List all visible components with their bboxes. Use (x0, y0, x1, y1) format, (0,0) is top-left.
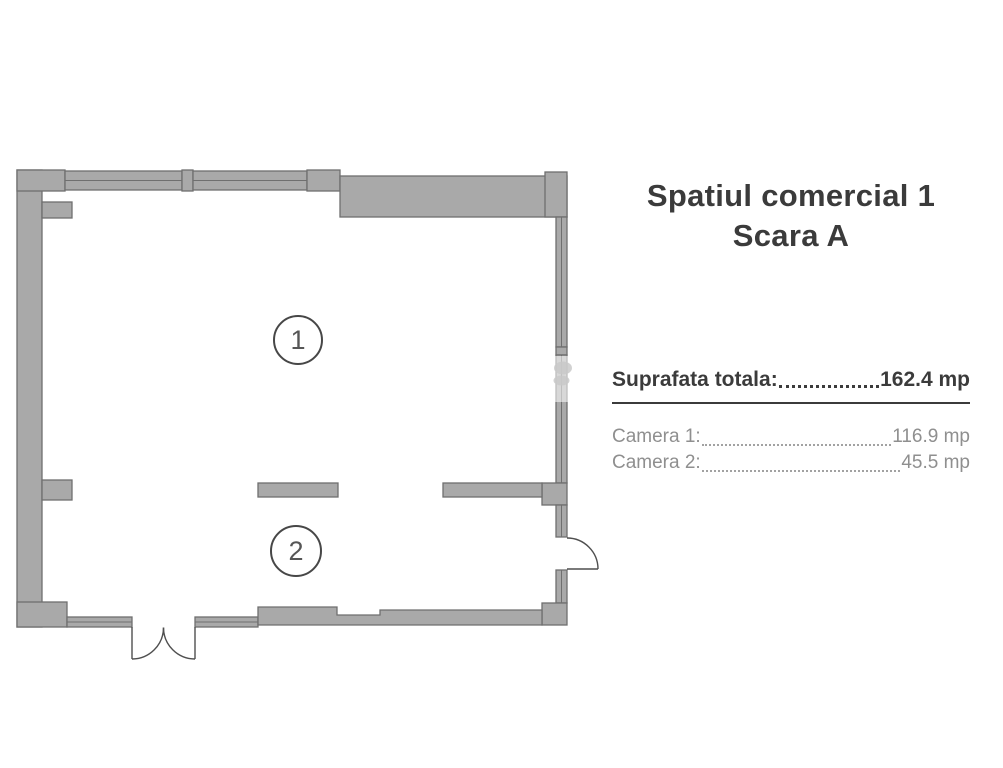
partition-stub-left (42, 480, 72, 500)
watermark (553, 356, 573, 402)
info-panel: Spatiul comercial 1 Scara A Suprafata to… (612, 176, 970, 476)
plan-title-line2: Scara A (612, 216, 970, 256)
top-left-corner-wall (17, 170, 65, 191)
room-2-area-label: Camera 2: (612, 450, 701, 476)
top-window-mullion (182, 170, 193, 191)
room-2-dotted-leader (702, 469, 901, 472)
total-area-label: Suprafata totala: (612, 368, 778, 392)
bottom-left-corner-wall (17, 602, 67, 627)
room-2-area-value: 45.5 mp (901, 450, 970, 476)
double-door-arc-right (164, 628, 196, 660)
total-area-value: 162.4 mp (880, 368, 970, 392)
left-wall (17, 170, 42, 627)
room-1-area-label: Camera 1: (612, 424, 701, 450)
plan-title-line1: Spatiul comercial 1 (612, 176, 970, 216)
room-1-marker: 1 (274, 316, 322, 364)
double-door-arc-left (132, 628, 164, 660)
room-1-number: 1 (290, 325, 305, 355)
room-2-area-row: Camera 2: 45.5 mp (612, 450, 970, 476)
watermark-blob-2 (554, 376, 570, 386)
doors (132, 538, 598, 659)
top-thick-wall (340, 176, 567, 217)
right-window-mullion (556, 347, 567, 355)
plan-title: Spatiul comercial 1 Scara A (612, 176, 970, 256)
bottom-right-corner-wall (542, 603, 567, 625)
top-right-corner-wall (545, 172, 567, 217)
bottom-solid-wall (258, 607, 542, 625)
divider-line (612, 402, 970, 404)
room-2-marker: 2 (271, 526, 321, 576)
top-wall-block (307, 170, 340, 191)
partition-bar-2 (443, 483, 542, 497)
total-dotted-leader (779, 384, 879, 388)
partition-bar-1 (258, 483, 338, 497)
top-left-wall-stub (42, 202, 72, 218)
interior-partitions (42, 480, 542, 500)
watermark-blob-1 (554, 362, 572, 375)
room-1-area-row: Camera 1: 116.9 mp (612, 424, 970, 450)
side-door-arc (567, 538, 598, 569)
right-wall-block (542, 483, 567, 505)
room-area-list: Camera 1: 116.9 mp Camera 2: 45.5 mp (612, 424, 970, 476)
room-1-dotted-leader (702, 443, 891, 446)
total-area-row: Suprafata totala: 162.4 mp (612, 368, 970, 392)
room-2-number: 2 (288, 536, 303, 566)
room-1-area-value: 116.9 mp (892, 424, 970, 450)
